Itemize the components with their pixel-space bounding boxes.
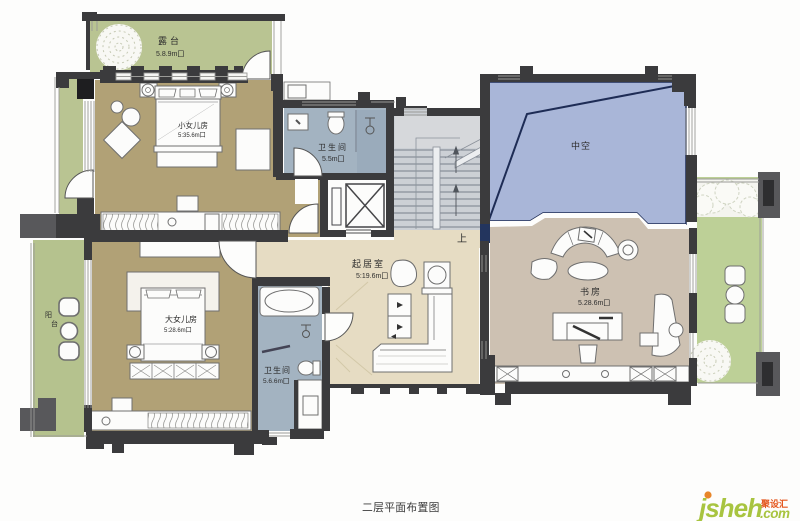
svg-text:5.6.6m囗: 5.6.6m囗: [263, 377, 289, 385]
svg-text:大女儿房: 大女儿房: [165, 314, 197, 324]
svg-text:上: 上: [457, 233, 467, 245]
svg-text:阳: 阳: [45, 310, 52, 319]
svg-text:聚设汇: 聚设汇: [760, 498, 788, 509]
svg-text:5:19.6m囗: 5:19.6m囗: [356, 272, 388, 280]
svg-text:卫生间: 卫生间: [264, 365, 291, 375]
svg-text:卫生间: 卫生间: [318, 142, 348, 152]
svg-text:起居室: 起居室: [352, 258, 385, 269]
svg-text:台: 台: [51, 319, 58, 328]
svg-text:中空: 中空: [571, 140, 591, 151]
svg-text:二层平面布置图: 二层平面布置图: [362, 501, 440, 514]
svg-text:5:35.6m囗: 5:35.6m囗: [178, 132, 206, 139]
svg-text:5:28.6m囗: 5:28.6m囗: [164, 327, 192, 334]
svg-text:书房: 书房: [580, 286, 602, 297]
svg-text:5.28.6m囗: 5.28.6m囗: [578, 299, 610, 307]
svg-text:露台: 露台: [158, 35, 182, 46]
svg-text:5.5m囗: 5.5m囗: [322, 155, 345, 163]
svg-text:5.8.9m囗: 5.8.9m囗: [156, 50, 184, 58]
svg-text:小女儿房: 小女儿房: [178, 120, 208, 130]
